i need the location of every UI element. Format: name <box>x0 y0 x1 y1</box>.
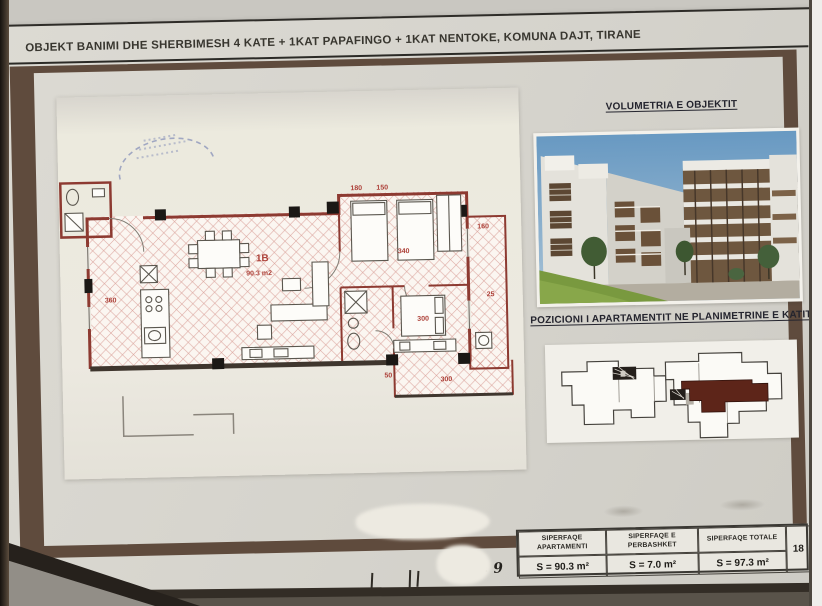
dim-label: 300 <box>441 376 453 383</box>
corridor-lines <box>123 394 234 436</box>
right-building <box>683 154 800 283</box>
table-header-shared: SIPERFAQE E PERBASHKET <box>606 528 699 555</box>
dim-label: 360 <box>105 297 117 304</box>
table-value-total: S = 97.3 m² <box>698 551 786 575</box>
photo-of-drawing-sheet: OBJEKT BANIMI DHE SHERBIMESH 4 KATE + 1K… <box>0 0 822 606</box>
dim-label: 340 <box>398 248 410 255</box>
sheet-title: OBJEKT BANIMI DHE SHERBIMESH 4 KATE + 1K… <box>25 29 641 54</box>
area-summary-table: SIPERFAQE APARTAMENTI SIPERFAQE E PERBAS… <box>516 523 809 576</box>
dim-label: 150 <box>376 184 388 191</box>
pencil-mark <box>719 498 765 511</box>
binder-edge <box>0 0 9 606</box>
pencil-mark <box>603 505 643 518</box>
unit-area-label: 90.3 m2 <box>246 270 272 278</box>
table-header-total: SIPERFAQE TOTALE <box>698 526 787 553</box>
floor-plan-panel: 1B 90.3 m2 360 180 150 340 160 25 300 50… <box>56 88 526 480</box>
sheet-number-cell: 18 <box>786 525 811 573</box>
building-render-image <box>533 127 803 307</box>
dim-label: 300 <box>417 316 429 323</box>
whiteout-smudge <box>436 544 491 585</box>
dim-label: 50 <box>384 372 392 379</box>
table-value-apartment: S = 90.3 m² <box>518 555 606 579</box>
dim-label: 180 <box>350 185 362 192</box>
table-value-shared: S = 7.0 m² <box>606 553 698 577</box>
building-render-svg <box>536 131 800 305</box>
table-header-apartment: SIPERFAQE APARTAMENTI <box>518 530 607 557</box>
drawing-sheet: OBJEKT BANIMI DHE SHERBIMESH 4 KATE + 1K… <box>0 7 822 606</box>
unit-label: 1B <box>256 253 269 264</box>
key-plan-svg <box>545 340 799 443</box>
scanner-background-strip <box>812 0 822 606</box>
key-plan-panel <box>545 340 799 443</box>
dim-label: 160 <box>477 223 489 230</box>
dim-label: 25 <box>487 291 495 298</box>
